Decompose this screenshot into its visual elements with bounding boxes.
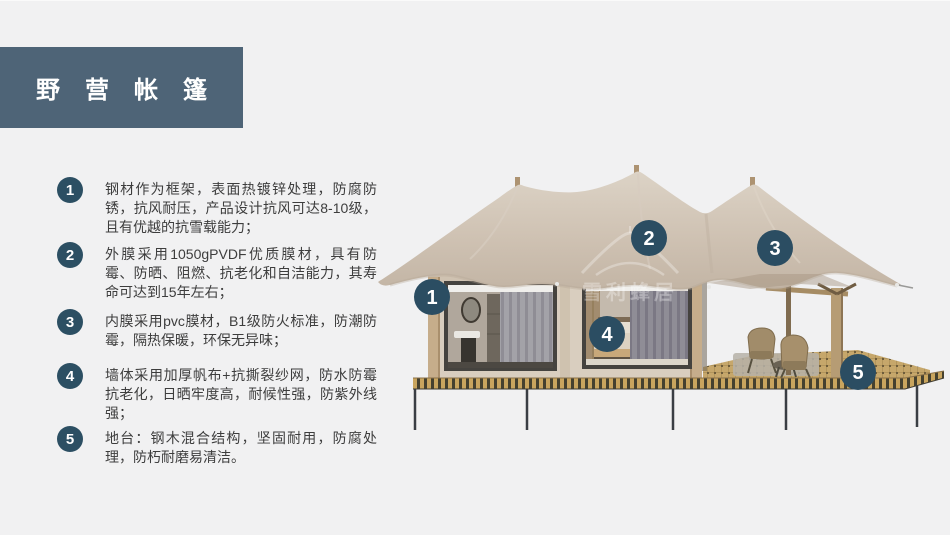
feature-number-badge: 4 (57, 363, 83, 389)
feature-number-badge: 3 (57, 309, 83, 335)
feature-text: 钢材作为框架，表面热镀锌处理，防腐防锈，抗风耐压，产品设计抗风可达8-10级，且… (105, 180, 377, 237)
page-title-text: 野营帐篷 (36, 70, 232, 105)
watermark-text: 雪利蜂居 (582, 280, 678, 304)
feature-number-badge: 5 (57, 426, 83, 452)
feature-text: 内膜采用pvc膜材，B1级防火标准，防潮防霉，隔热保暖，环保无异味； (105, 312, 377, 350)
slide-camping-tent: 野营帐篷 1 钢材作为框架，表面热镀锌处理，防腐防锈，抗风耐压，产品设计抗风可达… (0, 0, 950, 535)
deck-surface (703, 350, 930, 378)
eave-tie (555, 282, 559, 286)
svg-text:1: 1 (426, 287, 437, 309)
tensioner-rope (898, 285, 913, 288)
feature-number-badge: 1 (57, 177, 83, 203)
svg-text:3: 3 (769, 238, 780, 260)
callout-1: 1 (414, 279, 450, 315)
svg-text:2: 2 (643, 228, 654, 250)
callout-5: 5 (840, 354, 876, 390)
bathroom-mirror (462, 298, 480, 322)
svg-text:5: 5 (852, 362, 863, 384)
curtain (500, 292, 553, 368)
window-left (444, 281, 557, 371)
eave-tie (707, 285, 711, 289)
tent-diagram: 雪利蜂居 1 2 3 4 (370, 149, 950, 484)
window-divider (560, 281, 570, 380)
sink (454, 331, 480, 338)
feature-item-3: 3 内膜采用pvc膜材，B1级防火标准，防潮防霉，隔热保暖，环保无异味； (57, 312, 387, 350)
callout-4: 4 (589, 316, 625, 352)
feature-text: 墙体采用加厚帆布+抗撕裂纱网，防水防霉抗老化，日晒牢度高，耐候性强，防紫外线强； (105, 366, 377, 423)
feature-item-4: 4 墙体采用加厚帆布+抗撕裂纱网，防水防霉抗老化，日晒牢度高，耐候性强，防紫外线… (57, 366, 387, 423)
feature-text: 外膜采用1050gPVDF优质膜材，具有防霉、防晒、阻燃、抗老化和自洁能力，其寿… (105, 245, 377, 302)
feature-text: 地台：钢木混合结构，坚固耐用，防腐处理，防朽耐磨易清洁。 (105, 429, 377, 467)
feature-number-badge: 2 (57, 242, 83, 268)
page-title: 野营帐篷 (0, 47, 243, 128)
svg-text:4: 4 (601, 324, 613, 346)
callout-3: 3 (757, 230, 793, 266)
callout-2: 2 (631, 220, 667, 256)
tent-illustration: 雪利蜂居 1 2 3 4 (370, 149, 950, 484)
feature-item-2: 2 外膜采用1050gPVDF优质膜材，具有防霉、防晒、阻燃、抗老化和自洁能力，… (57, 245, 387, 302)
platform-legs (415, 386, 917, 430)
feature-item-1: 1 钢材作为框架，表面热镀锌处理，防腐防锈，抗风耐压，产品设计抗风可达8-10级… (57, 180, 387, 237)
feature-item-5: 5 地台：钢木混合结构，坚固耐用，防腐处理，防朽耐磨易清洁。 (57, 429, 387, 467)
shelf-unit (487, 294, 500, 364)
